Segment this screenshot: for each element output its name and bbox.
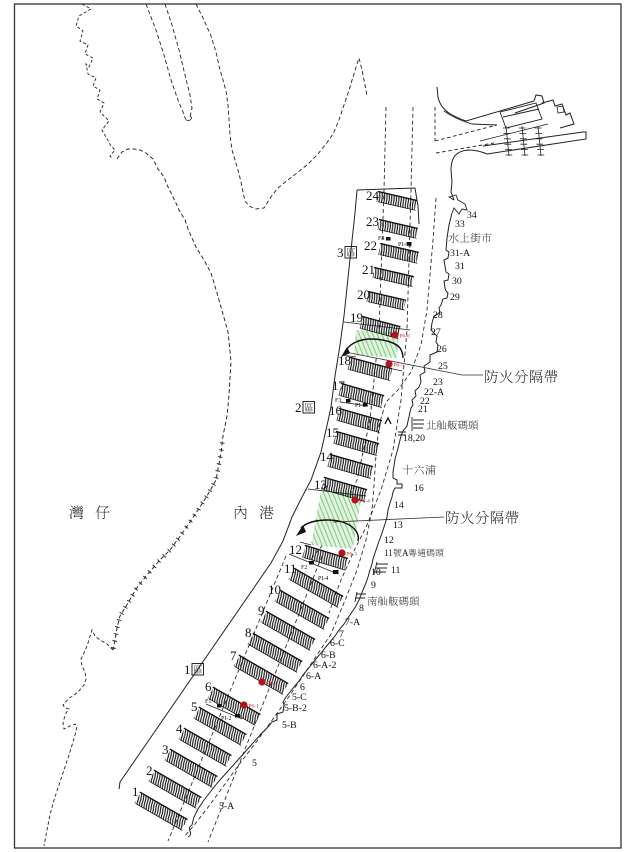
svg-text:3: 3 xyxy=(162,742,169,757)
svg-text:5-A: 5-A xyxy=(219,801,234,812)
svg-text:7-A: 7-A xyxy=(345,617,360,628)
svg-text:16: 16 xyxy=(329,403,343,418)
svg-text:F4: F4 xyxy=(378,236,384,242)
svg-text:1: 1 xyxy=(132,784,139,799)
svg-text:P6-2: P6-2 xyxy=(267,681,278,687)
svg-text:8: 8 xyxy=(245,625,252,640)
svg-text:5-C: 5-C xyxy=(292,692,307,703)
svg-text:24: 24 xyxy=(366,188,380,203)
svg-text:5-B: 5-B xyxy=(282,720,297,731)
svg-text:18,20: 18,20 xyxy=(403,433,425,444)
svg-text:28: 28 xyxy=(433,310,443,321)
svg-text:8: 8 xyxy=(359,603,364,614)
svg-text:17: 17 xyxy=(332,378,346,393)
svg-text:21: 21 xyxy=(362,262,375,277)
svg-text:2: 2 xyxy=(146,763,153,778)
svg-text:9: 9 xyxy=(258,603,265,618)
svg-text:7: 7 xyxy=(230,648,237,663)
svg-text:11: 11 xyxy=(384,548,393,558)
svg-text:27: 27 xyxy=(431,327,441,338)
svg-text:3: 3 xyxy=(337,245,344,260)
svg-text:5-B-2: 5-B-2 xyxy=(284,703,307,714)
svg-text:31-A: 31-A xyxy=(450,248,470,259)
svg-text:31: 31 xyxy=(455,261,465,272)
svg-text:F1: F1 xyxy=(205,699,211,705)
svg-text:10: 10 xyxy=(371,567,381,578)
svg-text:P6-3: P6-3 xyxy=(347,552,358,558)
svg-text:20: 20 xyxy=(357,287,370,302)
svg-text:13: 13 xyxy=(393,520,403,531)
svg-text:33: 33 xyxy=(455,219,465,230)
svg-text:5: 5 xyxy=(252,758,257,769)
svg-text:P6-5: P6-5 xyxy=(394,363,405,369)
svg-text:2: 2 xyxy=(295,400,302,415)
svg-text:25: 25 xyxy=(438,361,448,372)
svg-text:14: 14 xyxy=(320,449,334,464)
svg-text:30: 30 xyxy=(452,276,462,287)
svg-text:6-A: 6-A xyxy=(306,671,321,682)
svg-text:29: 29 xyxy=(450,292,460,303)
svg-text:P6-1: P6-1 xyxy=(249,704,260,710)
svg-text:6: 6 xyxy=(205,679,212,694)
svg-text:19: 19 xyxy=(350,310,363,325)
svg-text:11: 11 xyxy=(284,561,297,576)
svg-text:11: 11 xyxy=(391,565,401,576)
svg-text:9: 9 xyxy=(371,580,376,591)
svg-text:6-A-2: 6-A-2 xyxy=(313,660,336,671)
svg-text:5: 5 xyxy=(191,699,198,714)
svg-text:F2: F2 xyxy=(301,565,307,571)
svg-text:10: 10 xyxy=(268,582,281,597)
svg-text:A: A xyxy=(402,548,409,558)
svg-text:34: 34 xyxy=(467,210,477,221)
svg-text:P6-6: P6-6 xyxy=(400,334,411,340)
svg-text:13: 13 xyxy=(314,477,327,492)
svg-text:12: 12 xyxy=(384,535,394,546)
svg-text:22: 22 xyxy=(364,238,377,253)
svg-text:21: 21 xyxy=(418,404,428,415)
svg-text:15: 15 xyxy=(326,425,339,440)
svg-text:16: 16 xyxy=(414,483,424,494)
svg-text:PI-4: PI-4 xyxy=(318,576,328,582)
svg-text:F3: F3 xyxy=(335,398,341,404)
svg-text:1: 1 xyxy=(184,662,191,677)
svg-text:6-C: 6-C xyxy=(330,638,345,649)
svg-text:PI-2: PI-2 xyxy=(221,716,231,722)
svg-text:4: 4 xyxy=(176,721,183,736)
svg-text:P6-4: P6-4 xyxy=(360,499,371,505)
svg-text:23: 23 xyxy=(366,214,379,229)
svg-text:14: 14 xyxy=(394,500,404,511)
svg-text:26: 26 xyxy=(437,344,447,355)
